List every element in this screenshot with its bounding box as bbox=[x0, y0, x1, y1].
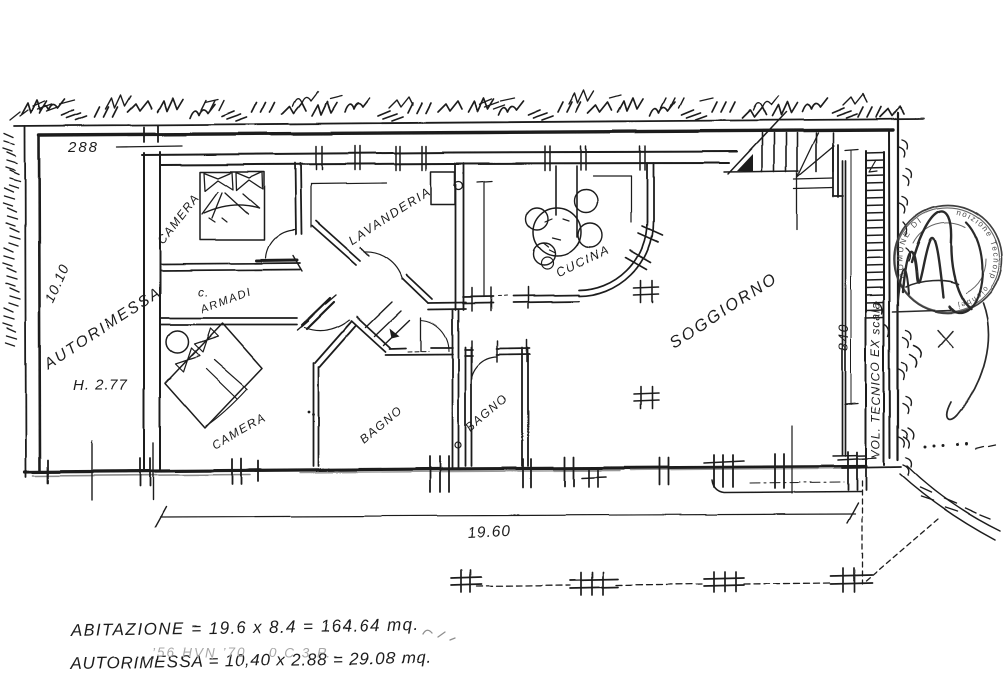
svg-text:840: 840 bbox=[835, 323, 851, 351]
svg-text:19.60: 19.60 bbox=[467, 523, 512, 542]
svg-text:VOL. TECNICO EX scala: VOL. TECNICO EX scala bbox=[869, 302, 883, 458]
svg-text:H. 2.77: H. 2.77 bbox=[73, 377, 128, 394]
svg-text:’56 HVN ’70 0 C 3 P.: ’56 HVN ’70 0 C 3 P. bbox=[152, 645, 332, 660]
svg-text:288: 288 bbox=[67, 139, 99, 156]
svg-text:c.: c. bbox=[198, 285, 209, 299]
